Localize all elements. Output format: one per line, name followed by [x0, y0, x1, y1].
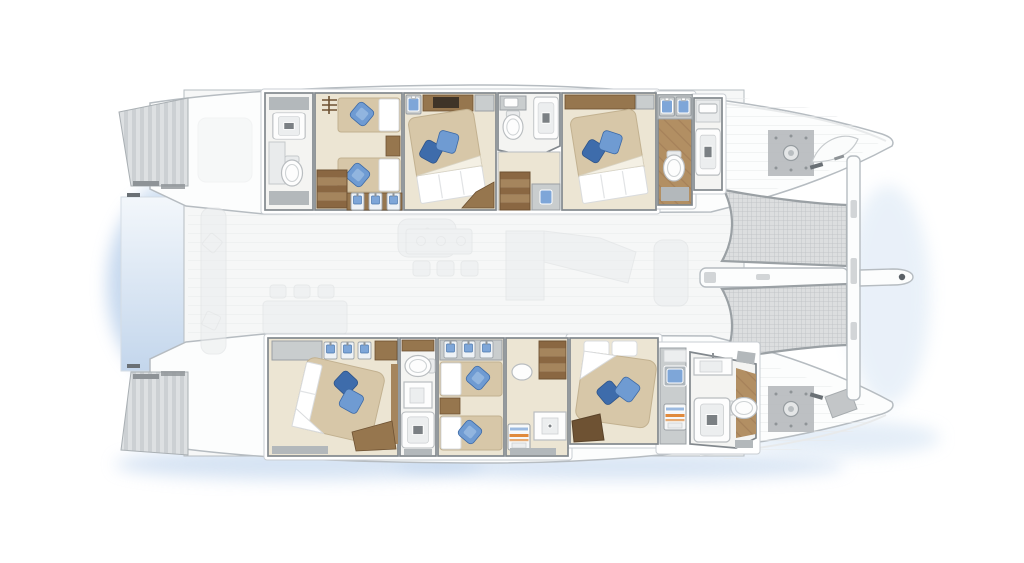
stbd-fwd-double-cabin — [570, 338, 658, 444]
ghost-stool — [437, 261, 454, 276]
ghost-galley-island — [406, 229, 472, 254]
sink-basin — [504, 98, 518, 107]
shower-icon — [402, 412, 434, 448]
shower-icon — [273, 113, 305, 139]
crossbeam-mark — [851, 200, 858, 218]
trampoline-net-port — [722, 190, 847, 266]
blue-sink-icon — [676, 97, 691, 116]
side-table — [512, 364, 532, 380]
bath-mat — [404, 449, 432, 455]
shelf — [565, 95, 635, 109]
wardrobe-locker — [387, 193, 400, 210]
wood-trim — [402, 340, 434, 351]
mat — [510, 448, 556, 455]
sink-icon — [406, 95, 421, 114]
step-edge — [161, 184, 185, 189]
port-winch-icon — [768, 130, 814, 176]
ghost-dining-table — [263, 301, 347, 334]
wardrobe-locker — [462, 341, 475, 358]
cabinet — [636, 95, 654, 109]
toilet-icon — [282, 156, 303, 186]
toilet-icon — [727, 398, 757, 419]
ghost-stool — [413, 261, 430, 276]
ghost-helm-seat — [654, 240, 688, 306]
stbd-fwd-bathroom — [660, 348, 757, 448]
nightstand — [440, 398, 460, 414]
nightstand — [386, 136, 400, 156]
mat — [272, 446, 328, 454]
starboard-winch-icon — [768, 386, 814, 432]
step-edge — [133, 374, 159, 379]
wardrobe-locker — [369, 193, 382, 210]
port-aft-bathroom — [265, 93, 313, 210]
shower-icon — [534, 97, 558, 139]
washer-icon — [664, 404, 686, 430]
ghost-chair — [270, 285, 286, 298]
shelf — [664, 350, 686, 362]
port-mid-double-cabin — [404, 93, 496, 210]
stern-steps-port — [119, 98, 188, 186]
shower-icon — [694, 398, 730, 442]
bowsprit-hole — [899, 274, 905, 280]
bath-mat — [269, 191, 309, 205]
double-bed — [570, 108, 649, 203]
wardrobe-locker — [358, 342, 371, 359]
drain — [548, 424, 552, 428]
double-bed — [408, 108, 487, 203]
blue-sink-icon — [540, 190, 552, 204]
crossbeam-mark — [851, 322, 858, 340]
wardrobe-locker — [351, 193, 364, 210]
washer-icon — [508, 424, 530, 450]
step-edge — [161, 371, 185, 376]
stern-steps-starboard — [121, 372, 188, 455]
sink-basin — [699, 104, 717, 113]
wardrobe-locker — [324, 342, 337, 359]
stbd-companionway — [506, 338, 568, 456]
cabins-starboard-row — [264, 334, 760, 460]
stbd-aft-bathroom — [400, 338, 436, 456]
cabinet — [272, 341, 322, 360]
ghost-stool — [461, 261, 478, 276]
catamaran-floor-plan — [0, 0, 1024, 563]
ghost-chair — [318, 285, 334, 298]
ghost-cockpit-sofa — [201, 208, 226, 354]
platform-hinge — [127, 364, 140, 368]
shower-icon — [696, 129, 720, 175]
head-pillow — [612, 341, 637, 356]
ghost-salon-sofa — [506, 231, 544, 300]
port-fwd-double-cabin — [562, 93, 656, 210]
stairs — [317, 170, 347, 208]
wardrobe-locker — [444, 341, 457, 358]
sink-basin — [410, 388, 424, 403]
port-fwd-bathroom — [658, 95, 692, 205]
step-edge — [133, 181, 159, 186]
port-aft-twin-cabin — [315, 93, 402, 210]
shelf — [375, 341, 397, 360]
wardrobe-locker — [480, 341, 493, 358]
stairs — [500, 172, 530, 210]
yacht-layout-image — [0, 0, 1024, 563]
spine-tread — [756, 274, 770, 280]
bath-mat — [269, 97, 309, 110]
stairs — [539, 341, 566, 379]
toilet-icon — [664, 151, 685, 181]
blue-sink-icon — [660, 97, 675, 116]
stbd-aft-double-cabin — [268, 338, 398, 456]
ghost-sunpad — [198, 118, 252, 182]
sink-basin — [700, 361, 722, 372]
toilet-icon — [405, 356, 435, 377]
mast-step — [704, 272, 716, 283]
blue-sink-icon — [667, 369, 683, 383]
cabins-port-row — [261, 89, 726, 214]
cabinet — [475, 95, 494, 111]
port-fwd-shower — [694, 98, 722, 190]
wardrobe-locker — [341, 342, 354, 359]
platform-hinge — [127, 193, 140, 197]
crossbeam-mark — [851, 258, 858, 284]
ghost-chair — [294, 285, 310, 298]
aft-hydraulic-platform — [121, 197, 187, 371]
bath-mat — [661, 187, 689, 201]
stbd-mid-twin-cabin — [438, 338, 504, 456]
bath-mat — [735, 440, 753, 448]
toilet-icon — [503, 111, 523, 140]
port-mid-bathroom — [498, 93, 560, 210]
tv-icon — [433, 97, 459, 108]
